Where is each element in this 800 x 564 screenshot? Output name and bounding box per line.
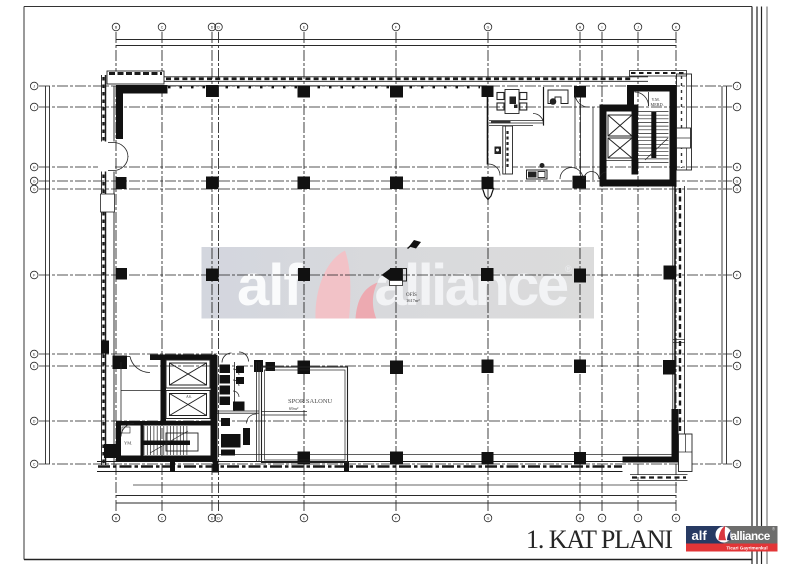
svg-text:SPOR SALONU: SPOR SALONU [288, 398, 333, 405]
svg-text:alf: alf [237, 253, 303, 318]
svg-text:YM.: YM. [124, 441, 132, 446]
svg-text:J: J [637, 25, 639, 29]
svg-text:G: G [736, 187, 739, 191]
svg-text:F: F [33, 273, 35, 277]
svg-text:J: J [33, 84, 35, 88]
svg-text:G: G [33, 187, 36, 191]
svg-text:alf: alf [692, 528, 708, 543]
svg-text:1. KAT PLANI: 1. KAT PLANI [526, 525, 672, 554]
svg-text:F: F [395, 516, 397, 520]
svg-text:1617m²: 1617m² [406, 298, 420, 303]
svg-text:Ticari Gayrimenkul: Ticari Gayrimenkul [726, 546, 767, 551]
svg-text:G: G [487, 25, 490, 29]
svg-text:alliance: alliance [375, 253, 568, 318]
svg-text:I: I [602, 25, 603, 29]
svg-text:F: F [736, 273, 738, 277]
svg-text:I: I [34, 105, 35, 109]
svg-text:I: I [737, 105, 738, 109]
svg-text:AS.: AS. [186, 395, 192, 399]
svg-text:MERD.: MERD. [651, 102, 664, 107]
svg-text:G: G [33, 179, 36, 183]
svg-text:F: F [395, 25, 397, 29]
svg-text:69m²: 69m² [289, 406, 299, 411]
svg-text:I: I [602, 516, 603, 520]
svg-text:®: ® [565, 264, 572, 274]
svg-text:alliance: alliance [731, 529, 771, 543]
svg-text:G: G [736, 179, 739, 183]
svg-text:G: G [487, 516, 490, 520]
svg-text:J: J [637, 516, 639, 520]
svg-text:J: J [736, 84, 738, 88]
